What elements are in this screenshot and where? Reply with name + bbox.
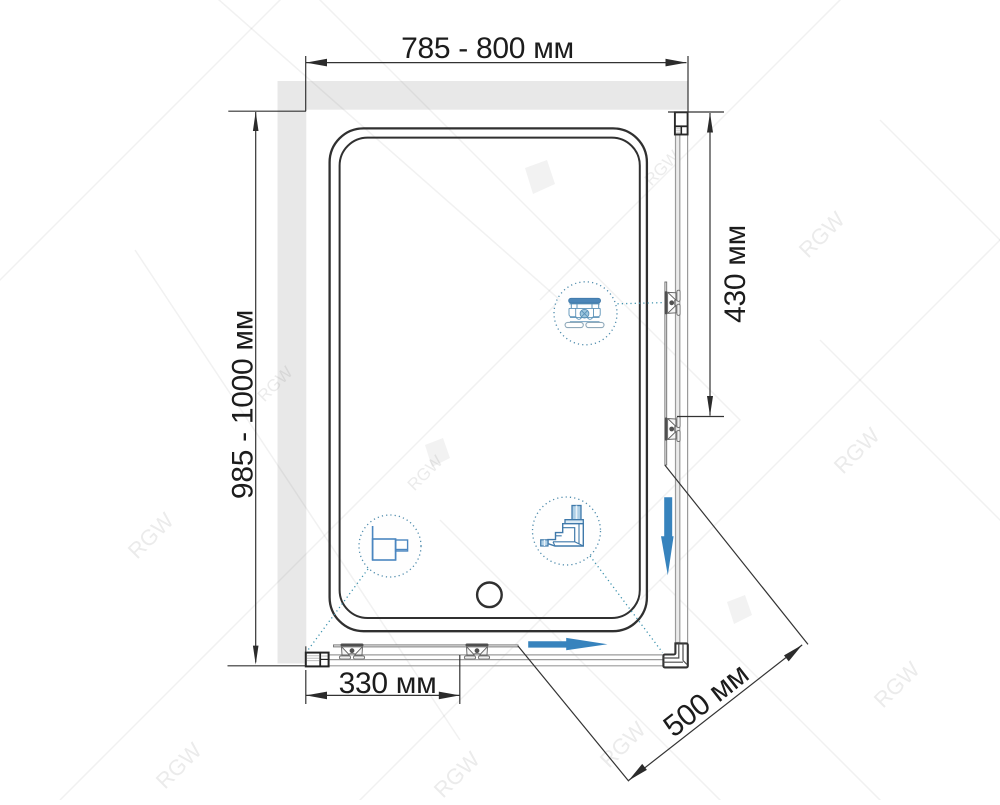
svg-text:785 - 800 мм: 785 - 800 мм	[401, 32, 574, 65]
svg-text:330 мм: 330 мм	[339, 667, 437, 700]
svg-text:430 мм: 430 мм	[719, 225, 752, 323]
svg-text:985 - 1000 мм: 985 - 1000 мм	[227, 310, 260, 499]
